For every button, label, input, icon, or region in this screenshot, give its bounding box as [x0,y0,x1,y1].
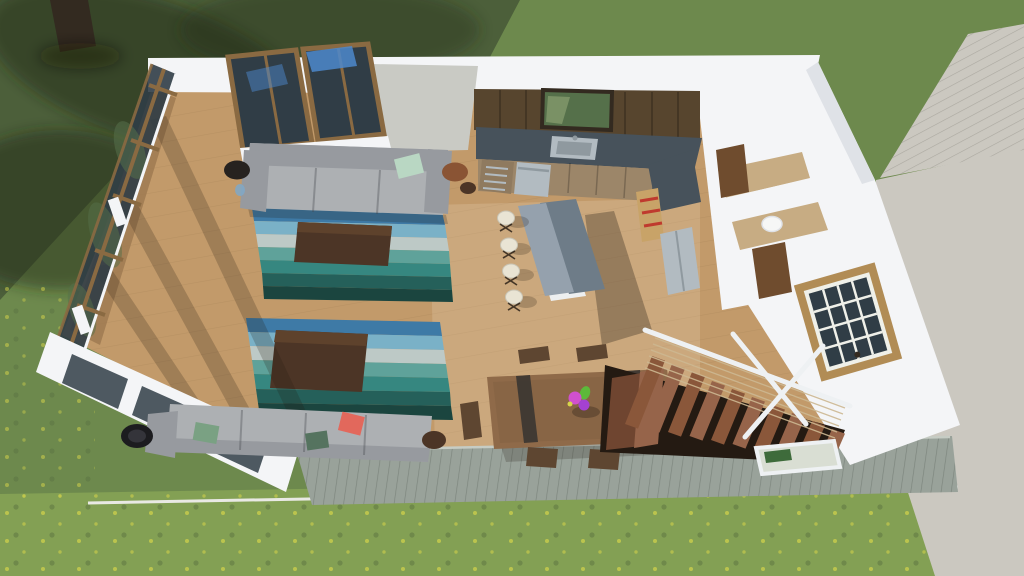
tree-trunk-shadow [38,43,122,69]
flower-purple [579,400,590,411]
bar-stool [506,290,523,304]
window-pane [228,50,312,150]
bar-stool [503,264,520,278]
faucet [573,136,578,141]
side-table-copper [442,163,468,182]
sofa-arm [424,149,452,214]
toilet [762,217,782,232]
rendering-canvas [0,0,1024,576]
flower-yellow [568,402,573,407]
sink-basin [556,141,592,156]
sofa-arm [240,150,270,212]
bar-stool [501,238,518,252]
dining-chair [526,447,558,468]
interior-door [716,144,749,198]
lounge-chair-cushion [128,430,146,443]
interior-door [752,242,792,299]
throw-pillow-green [305,431,329,451]
house-cutaway-rendering [0,0,1024,576]
glass-vase [235,184,245,196]
bar-stool [498,211,515,225]
side-table [422,431,446,449]
living-room-sofa-top [224,143,476,224]
stool-small [460,182,476,194]
side-table [224,161,250,180]
